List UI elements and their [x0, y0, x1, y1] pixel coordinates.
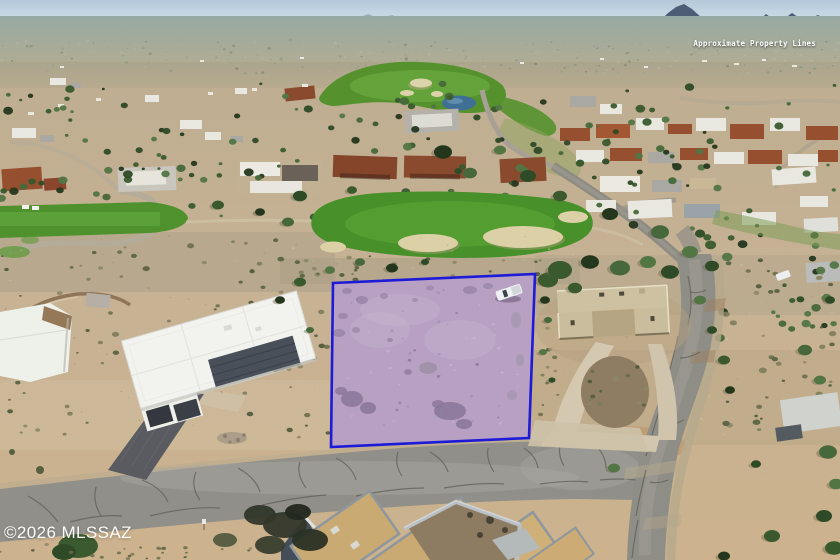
- golf-cart: [32, 206, 39, 210]
- sky: [0, 0, 840, 18]
- sand-bunker: [410, 79, 432, 88]
- mls-watermark: ©2026 MLSSAZ: [4, 523, 132, 543]
- property-lines-label: Approximate Property Lines: [693, 39, 816, 48]
- property-lot: [331, 274, 535, 447]
- aerial-photo: [0, 0, 840, 560]
- listing-photo-page: { "overlay": { "property_lines_label": "…: [0, 0, 840, 560]
- golf-cart: [22, 205, 29, 209]
- mailbox: [202, 519, 206, 524]
